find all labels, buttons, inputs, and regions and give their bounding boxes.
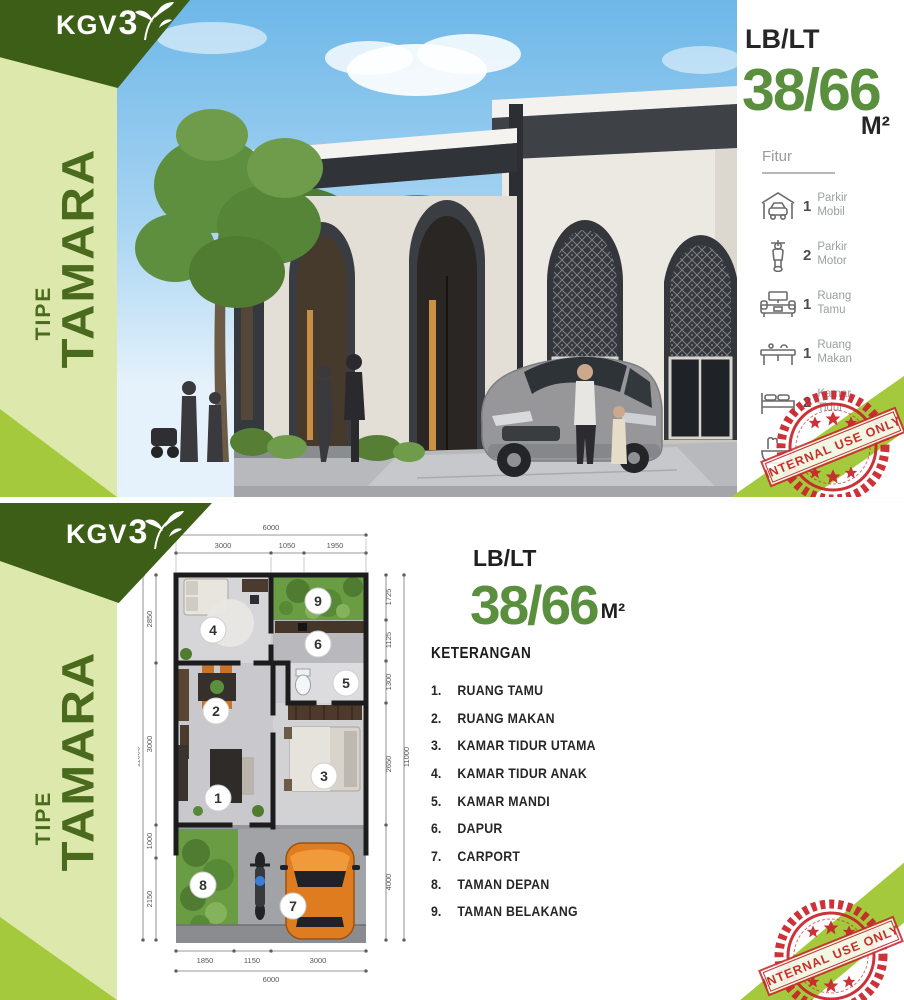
legend-item: 5.KAMAR MANDI	[431, 787, 596, 815]
legend-item: 7.CARPORT	[431, 842, 596, 870]
feature-label: Ruang Tamu	[817, 290, 869, 318]
features-rule	[762, 172, 835, 174]
spec-value-number: 38/66	[470, 574, 598, 636]
room-number: 9	[314, 593, 322, 609]
sidebar-diagonal	[0, 917, 117, 1000]
floorplan-drawing: 1 2 3 4 5 6 7 8 9 6000	[138, 513, 428, 985]
dim-label: 11000	[138, 747, 142, 767]
room-number: 4	[209, 622, 217, 638]
dim-label: 2850	[145, 611, 154, 628]
legend-label: KAMAR TIDUR ANAK	[457, 765, 587, 781]
dim-label: 1125	[384, 632, 393, 648]
flyer-page: TIPE TAMARA KGV3 LB/LT 38/66 M² Fitur	[0, 0, 904, 1000]
stamp-badge-icon: INTERNAL USE ONLY	[758, 904, 903, 1000]
legend-label: TAMAN BELAKANG	[457, 903, 578, 919]
brand-text: KGV	[66, 521, 128, 548]
features-heading: Fitur	[762, 148, 792, 165]
room-number: 8	[199, 877, 207, 893]
toilet	[296, 669, 311, 695]
spec-value: 38/66M²	[470, 573, 625, 637]
legend-item: 2.RUANG MAKAN	[431, 704, 596, 732]
legend-number: 1.	[431, 682, 457, 698]
feature-count: 1	[803, 345, 811, 362]
legend-heading: KETERANGAN	[431, 645, 531, 663]
room-number: 2	[212, 703, 220, 719]
legend-number: 3.	[431, 737, 457, 753]
dim-label: 1300	[384, 674, 393, 691]
feature-count: 1	[803, 198, 811, 215]
legend-number: 4.	[431, 765, 457, 781]
dim-label: 6000	[263, 975, 280, 984]
dim-label: 3000	[310, 956, 327, 965]
legend-item: 9.TAMAN BELAKANG	[431, 898, 596, 926]
legend-number: 9.	[431, 903, 457, 919]
stamp-badge-icon: INTERNAL USE ONLY	[760, 395, 904, 497]
feature-row: 1 Ruang Makan	[757, 333, 869, 373]
legend-number: 5.	[431, 793, 457, 809]
legend-label: RUANG MAKAN	[457, 710, 554, 726]
legend-label: RUANG TAMU	[457, 682, 543, 698]
legend-list: 1.RUANG TAMU 2.RUANG MAKAN 3.KAMAR TIDUR…	[431, 676, 618, 925]
dim-label: 4000	[384, 874, 393, 891]
exterior-scene	[117, 0, 737, 497]
dining-table-icon	[757, 336, 799, 370]
legend-number: 8.	[431, 876, 457, 892]
dim-label: 1725	[384, 589, 393, 606]
sidebar-diagonal	[0, 409, 117, 497]
legend-label: DAPUR	[457, 820, 502, 836]
feature-label: Parkir Motor	[817, 241, 869, 269]
legend-label: KAMAR TIDUR UTAMA	[457, 737, 595, 753]
spec-label: LB/LT	[473, 545, 536, 572]
room-number: 1	[214, 790, 222, 806]
internal-use-stamp: INTERNAL USE ONLY	[756, 881, 904, 1000]
room-number: 5	[342, 675, 350, 691]
motorbike-icon	[757, 238, 799, 272]
dim-label: 2650	[384, 756, 393, 773]
legend-item: 8.TAMAN DEPAN	[431, 870, 596, 898]
car	[482, 357, 662, 477]
legend-item: 6.DAPUR	[431, 814, 596, 842]
dim-label: 1950	[327, 541, 344, 550]
dim-label: 2150	[145, 891, 154, 908]
spec-label: LB/LT	[745, 24, 819, 55]
spec-value: 38/66	[742, 56, 880, 124]
feature-label: Parkir Mobil	[817, 192, 869, 220]
feature-row: 1 Parkir Mobil	[757, 186, 869, 226]
room-number: 7	[289, 898, 297, 914]
legend-number: 7.	[431, 848, 457, 864]
legend-item: 3.KAMAR TIDUR UTAMA	[431, 731, 596, 759]
dim-label: 1000	[145, 833, 154, 850]
dim-label: 1850	[197, 956, 214, 965]
dim-label: 3000	[215, 541, 232, 550]
legend-item: 1.RUANG TAMU	[431, 676, 596, 704]
internal-use-stamp: INTERNAL USE ONLY	[758, 372, 904, 497]
legend-number: 6.	[431, 820, 457, 836]
feature-label: Ruang Makan	[817, 339, 869, 367]
dim-label: 6000	[263, 523, 280, 532]
type-name: TAMARA	[53, 651, 105, 872]
feature-row: 2 Parkir Motor	[757, 235, 869, 275]
feature-row: 1 Ruang Tamu	[757, 284, 869, 324]
carport-icon	[757, 189, 799, 223]
dim-label: 1050	[279, 541, 296, 550]
car-topview	[280, 843, 360, 939]
sofa-icon	[757, 287, 799, 321]
dim-label: 1150	[244, 956, 260, 965]
brand-logo: KGV3	[56, 12, 175, 44]
floorplan-panel: TIPE TAMARA KGV3	[0, 503, 904, 1000]
feature-count: 1	[803, 296, 811, 313]
dim-label: 11000	[402, 747, 411, 767]
type-name: TAMARA	[53, 148, 105, 369]
legend-number: 2.	[431, 710, 457, 726]
feature-count: 2	[803, 247, 811, 264]
house-exterior-render	[117, 0, 737, 497]
spec-unit: M²	[861, 112, 890, 141]
legend-label: TAMAN DEPAN	[457, 876, 549, 892]
floorplan-svg: 1 2 3 4 5 6 7 8 9 6000	[138, 513, 428, 985]
spec-unit: M²	[601, 600, 626, 623]
room-number: 3	[320, 768, 328, 784]
legend-label: CARPORT	[457, 848, 520, 864]
brand-logo: KGV3	[66, 521, 185, 553]
legend-item: 4.KAMAR TIDUR ANAK	[431, 759, 596, 787]
brand-text: KGV	[56, 12, 118, 39]
dim-label: 3000	[145, 736, 154, 753]
room-number: 6	[314, 636, 322, 652]
exterior-panel: TIPE TAMARA KGV3 LB/LT 38/66 M² Fitur	[0, 0, 904, 497]
legend-label: KAMAR MANDI	[457, 793, 550, 809]
